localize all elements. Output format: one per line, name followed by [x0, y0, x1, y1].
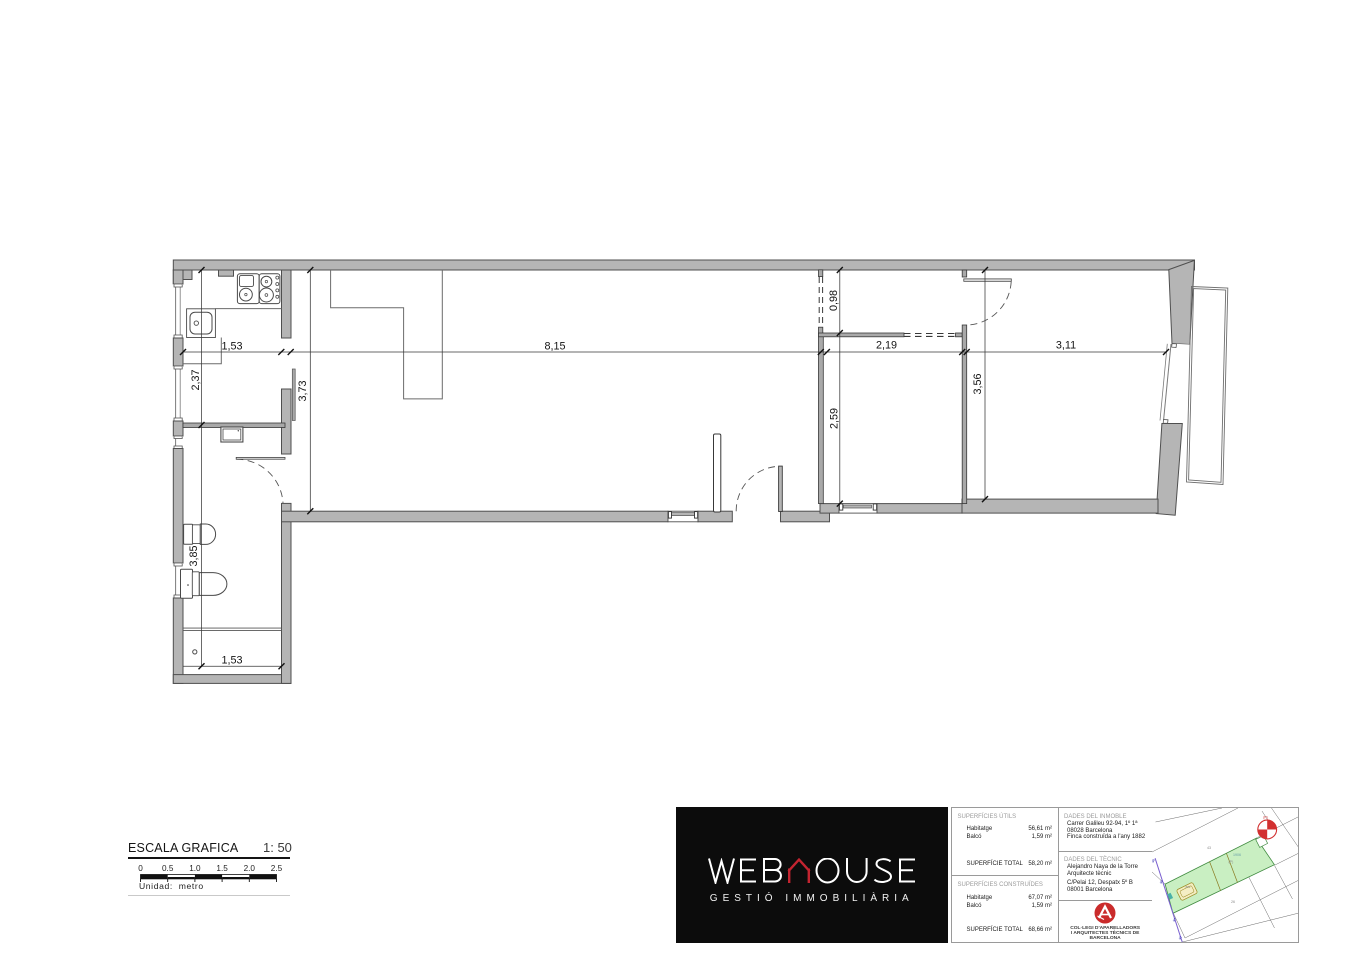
svg-text:862: 862 — [1186, 885, 1191, 889]
svg-text:43: 43 — [1207, 846, 1211, 850]
svg-text:26: 26 — [1231, 900, 1235, 904]
svg-text:3,85: 3,85 — [188, 545, 200, 566]
svg-text:1906: 1906 — [1233, 853, 1241, 857]
svg-text:1,53: 1,53 — [221, 341, 242, 353]
svg-text:0,98: 0,98 — [828, 290, 840, 311]
svg-text:2,59: 2,59 — [829, 408, 841, 429]
svg-text:3,56: 3,56 — [972, 373, 984, 394]
svg-text:1,53: 1,53 — [221, 655, 242, 667]
svg-text:2.5: 2.5 — [271, 864, 283, 873]
svg-text:(P): (P) — [1229, 860, 1234, 864]
svg-text:1.5: 1.5 — [216, 864, 228, 873]
svg-text:0: 0 — [138, 864, 143, 873]
svg-text:0.5: 0.5 — [162, 864, 174, 873]
svg-text:3,73: 3,73 — [297, 380, 309, 401]
svg-text:2,37: 2,37 — [190, 369, 202, 390]
svg-text:(P): (P) — [1263, 815, 1268, 819]
svg-text:3,11: 3,11 — [1056, 340, 1076, 352]
svg-text:2,19: 2,19 — [876, 340, 897, 352]
svg-text:8,15: 8,15 — [544, 341, 565, 353]
svg-text:1.0: 1.0 — [189, 864, 201, 873]
svg-text:2.0: 2.0 — [244, 864, 256, 873]
